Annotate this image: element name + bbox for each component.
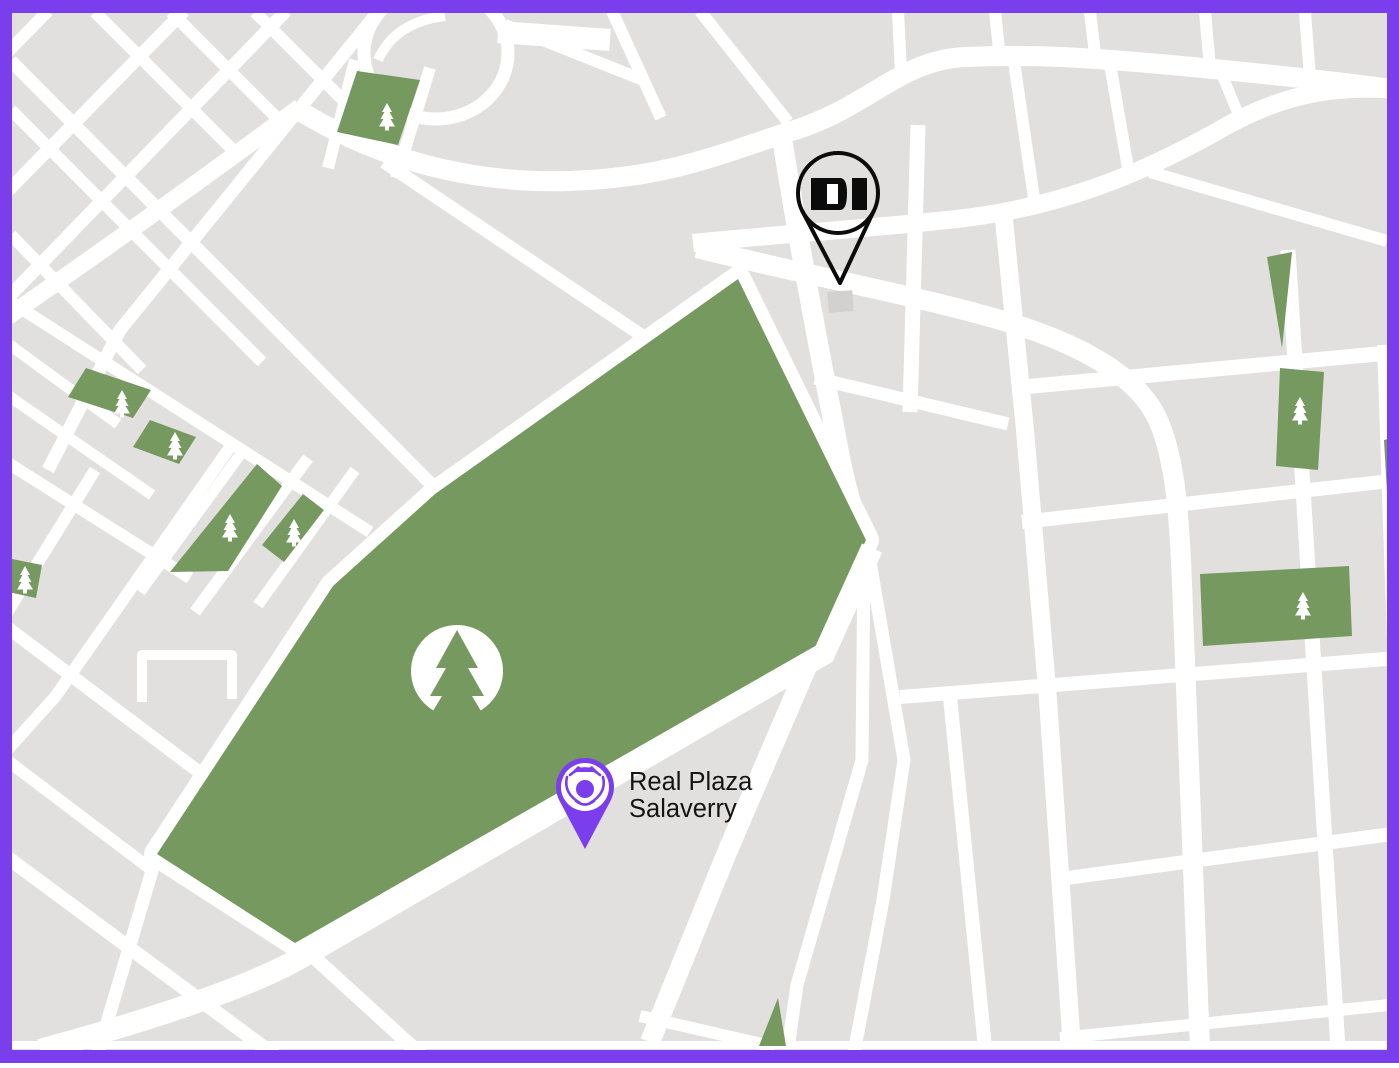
- svg-text:Salaverry: Salaverry: [629, 795, 737, 823]
- svg-text:Real Plaza: Real Plaza: [629, 768, 753, 796]
